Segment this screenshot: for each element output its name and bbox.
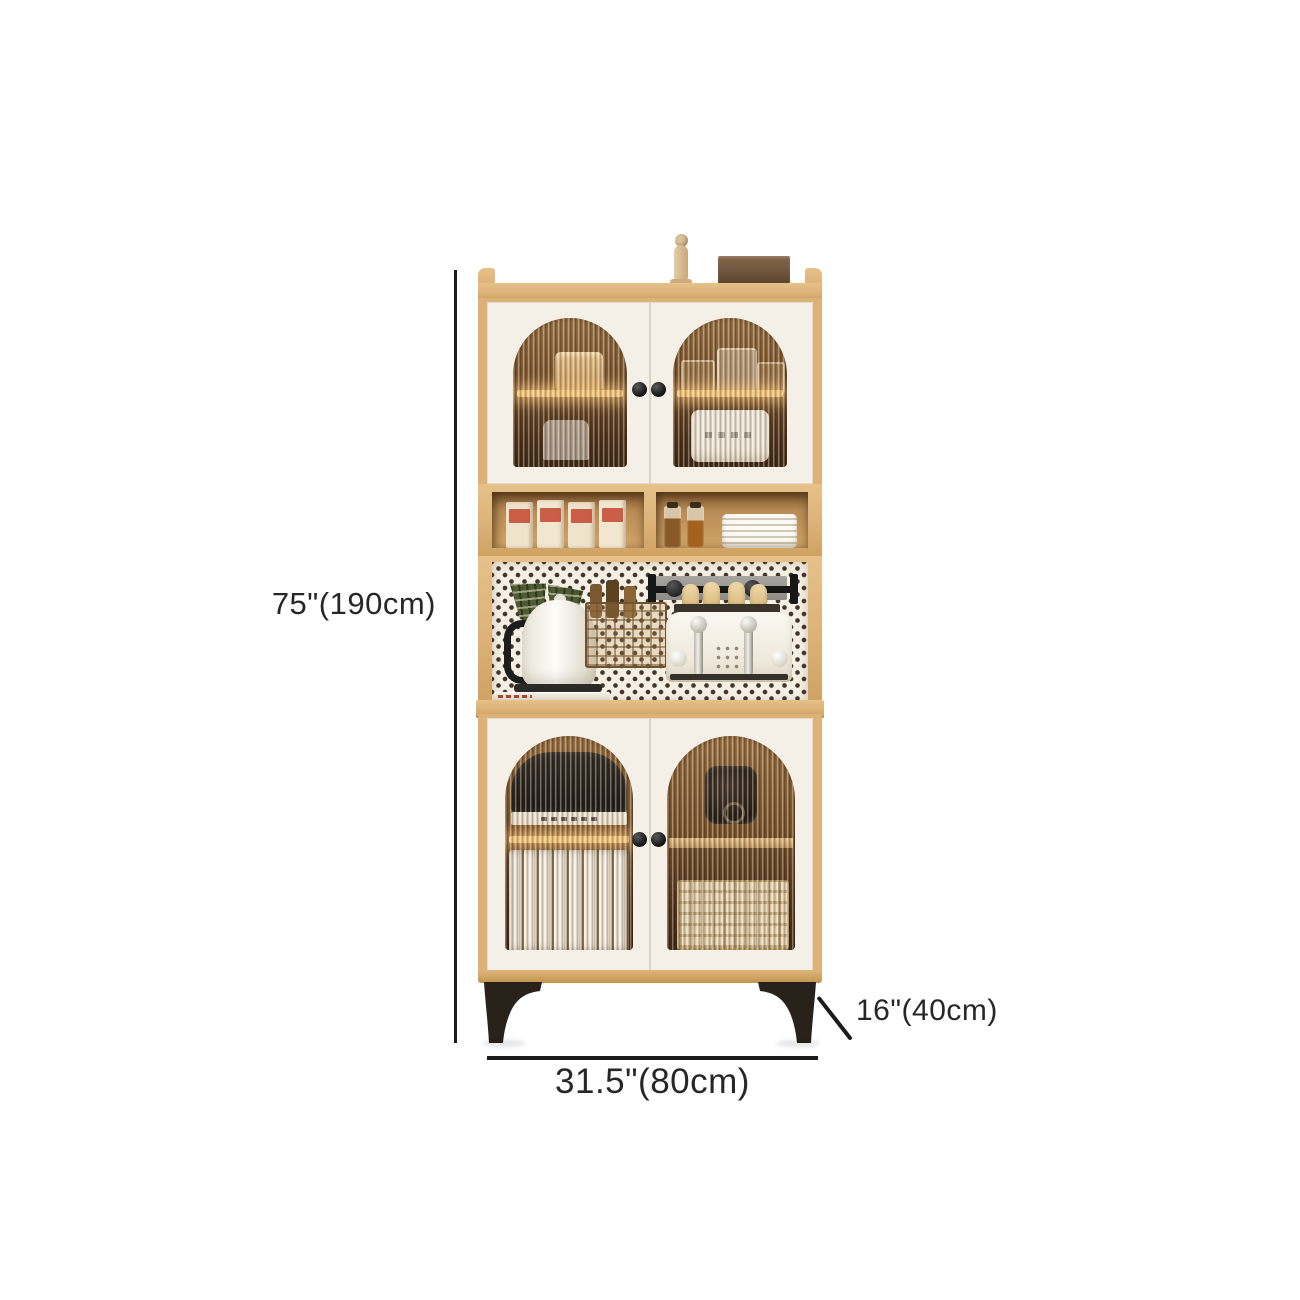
storage-basket	[677, 880, 789, 950]
box-label	[509, 509, 530, 523]
width-dimension-line	[487, 1056, 818, 1060]
wire-spice-basket	[585, 602, 667, 668]
toaster	[666, 612, 792, 682]
white-jar-decor	[691, 410, 769, 462]
cereal-box	[599, 500, 626, 548]
leg-shadow	[776, 1040, 820, 1047]
canister-decor	[555, 352, 603, 390]
led-shelf-light	[509, 836, 629, 843]
black-appliance	[511, 752, 627, 812]
spice-jar	[664, 506, 681, 548]
plate-stack	[722, 514, 797, 548]
figurine-decor	[668, 234, 694, 286]
left-leg	[482, 982, 544, 1043]
toaster-lever	[694, 628, 703, 676]
upper-left-door-knob	[632, 382, 647, 397]
toaster-lever	[744, 628, 753, 676]
toaster-dial	[670, 650, 687, 667]
kettle	[504, 600, 596, 692]
spice-jar	[687, 506, 704, 548]
lower-right-arch-window	[667, 736, 795, 950]
dark-pot	[705, 766, 757, 824]
upper-right-door-knob	[651, 382, 666, 397]
appliance-base-band	[511, 812, 627, 825]
product-dimension-image: 75"(190cm) 31.5"(80cm) 16"(40cm)	[0, 0, 1300, 1300]
depth-dimension-label: 16"(40cm)	[856, 994, 998, 1028]
width-dimension-label: 31.5"(80cm)	[487, 1062, 818, 1102]
jar-cap	[667, 502, 678, 508]
cup-decor	[543, 420, 589, 460]
open-shelf-row	[478, 484, 822, 556]
jar-cap	[690, 502, 701, 508]
lower-cabinet	[478, 714, 822, 972]
pegboard-niche	[478, 556, 822, 702]
led-shelf-light	[677, 390, 783, 397]
open-shelf-left	[492, 492, 644, 548]
box-label	[571, 509, 592, 523]
cereal-box	[537, 500, 564, 548]
lower-right-door-knob	[651, 832, 666, 847]
book-spine-mark	[498, 695, 532, 698]
upper-door-divider	[649, 302, 651, 484]
open-shelf-right	[656, 492, 808, 548]
wood-shelf	[669, 838, 793, 848]
lower-door-divider	[649, 718, 651, 972]
kettle-base	[514, 684, 602, 692]
height-dimension-line	[454, 270, 457, 1043]
toaster-buttons	[714, 644, 744, 670]
rail-end-cap	[790, 574, 798, 604]
cabinet	[0, 0, 1300, 1300]
height-dimension-label: 75"(190cm)	[240, 586, 436, 622]
pot-handle	[723, 802, 745, 824]
cereal-box	[568, 502, 595, 548]
figurine-body	[674, 245, 688, 281]
lower-left-door-knob	[632, 832, 647, 847]
cereal-box	[506, 502, 533, 548]
jar-markings	[705, 432, 755, 438]
leg-shadow	[482, 1040, 526, 1047]
toaster-base	[670, 674, 788, 680]
storage-box-decor	[718, 256, 790, 286]
box-label	[602, 508, 623, 522]
glass-cups-decor	[681, 360, 715, 394]
box-label	[540, 508, 561, 522]
upper-right-arch-window	[673, 318, 787, 467]
appliance-label-marks	[541, 817, 597, 821]
upper-cabinet	[478, 298, 822, 488]
vertical-plate-rack	[509, 850, 629, 950]
upper-left-arch-window	[513, 318, 627, 467]
led-shelf-light	[517, 390, 623, 397]
toaster-dial	[771, 650, 788, 667]
glass-cups-decor	[717, 348, 757, 394]
lower-left-arch-window	[505, 736, 633, 950]
rail-end-cap	[648, 574, 656, 604]
right-leg	[756, 982, 818, 1043]
rail-hook-knob	[666, 580, 683, 597]
